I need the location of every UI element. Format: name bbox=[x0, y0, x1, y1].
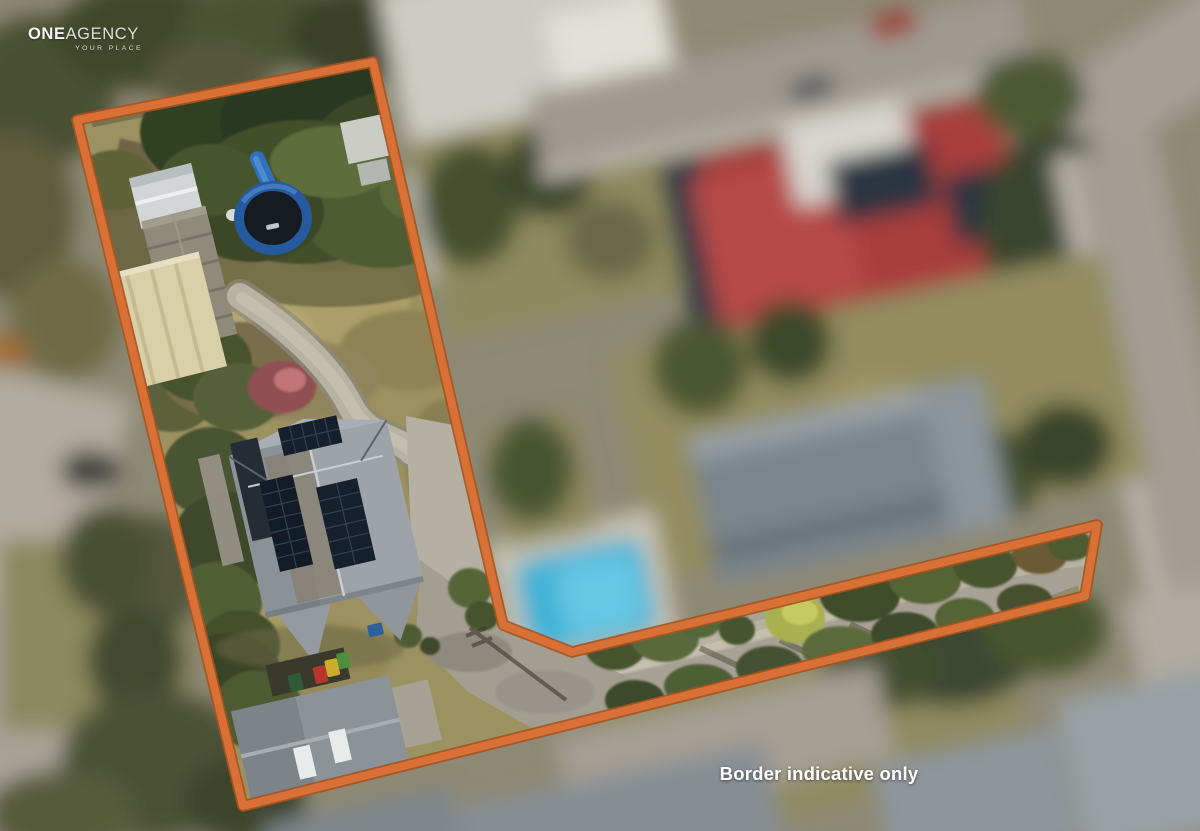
agency-logo: ONEAGENCY YOUR PLACE bbox=[28, 26, 144, 52]
logo-brand-one: ONE bbox=[28, 25, 66, 43]
agency-logo-wordmark: ONEAGENCY bbox=[28, 26, 144, 43]
trampoline-mat bbox=[244, 191, 302, 245]
real-estate-aerial-photo: ONEAGENCY YOUR PLACE Border indicative o… bbox=[0, 0, 1200, 831]
logo-brand-agency: AGENCY bbox=[66, 25, 139, 43]
border-disclaimer-text: Border indicative only bbox=[700, 763, 938, 785]
agency-logo-tagline: YOUR PLACE bbox=[28, 45, 144, 52]
aerial-scene bbox=[0, 0, 1200, 831]
trampoline bbox=[234, 181, 312, 255]
parked-car bbox=[60, 450, 120, 490]
